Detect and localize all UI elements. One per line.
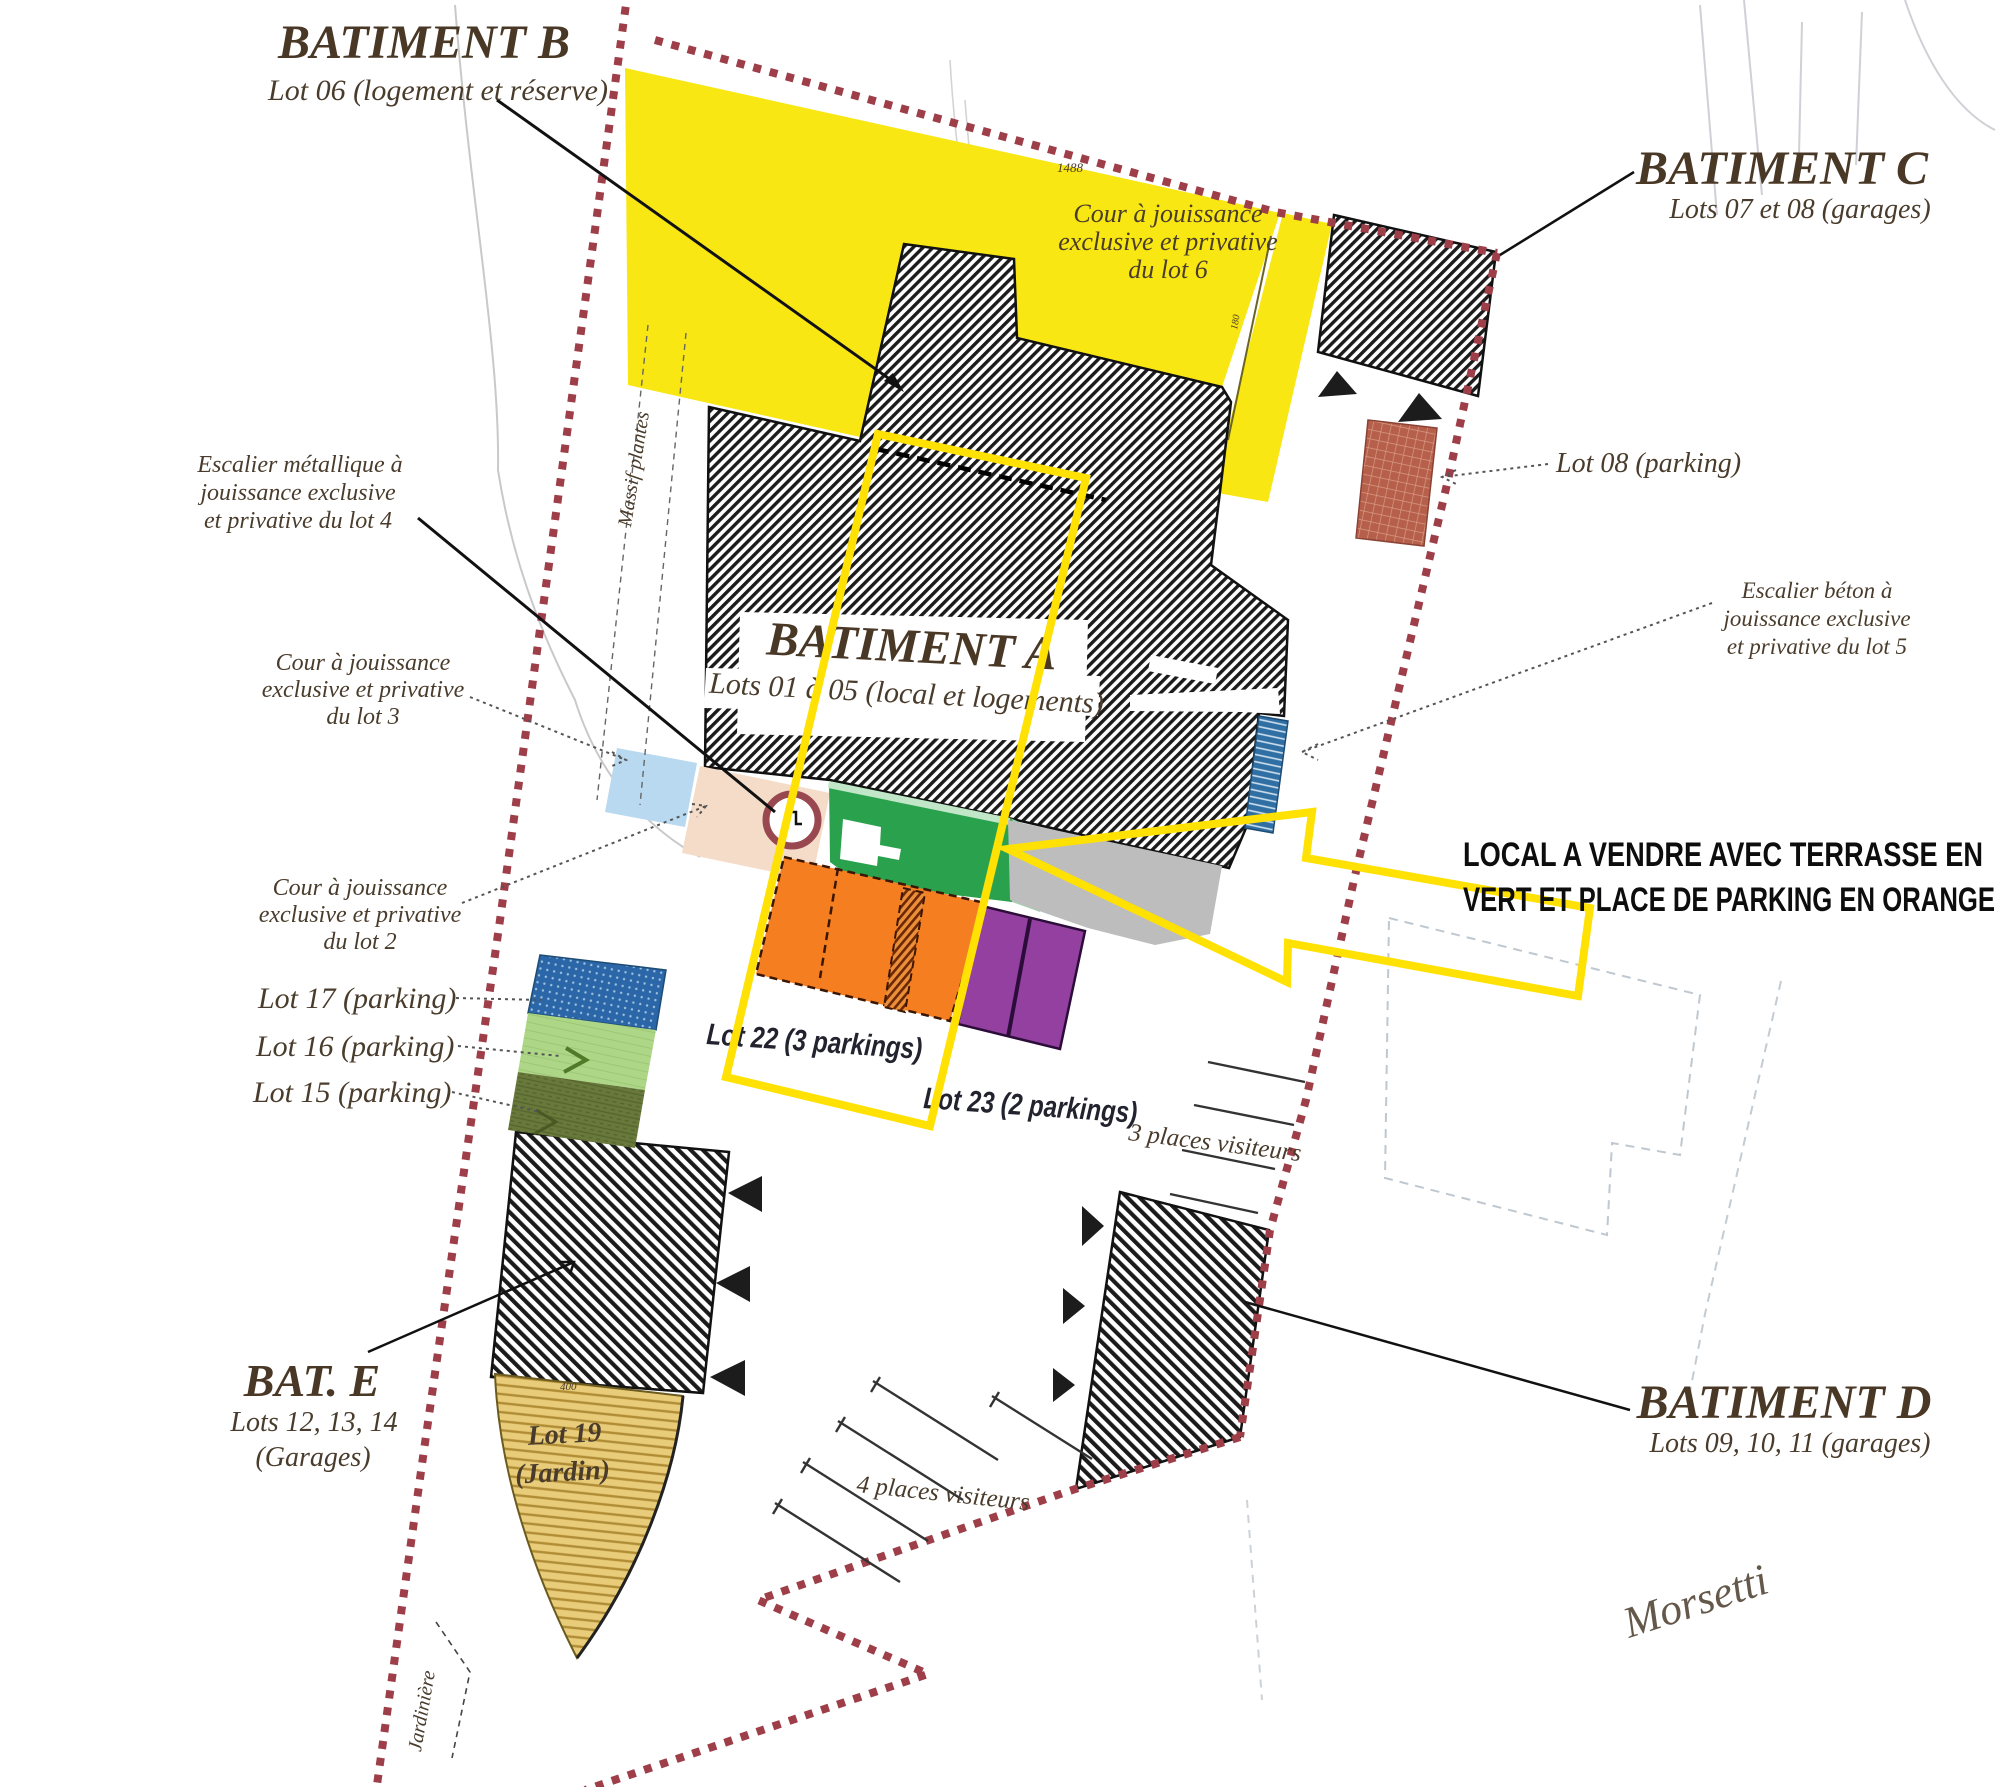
svg-text:Cour à jouissance: Cour à jouissance [1073, 199, 1262, 228]
svg-text:BATIMENT D: BATIMENT D [1636, 1376, 1932, 1429]
svg-text:(Garages): (Garages) [255, 1442, 370, 1473]
svg-text:jouissance exclusive: jouissance exclusive [1720, 606, 1910, 631]
svg-text:exclusive et privative: exclusive et privative [262, 677, 465, 703]
svg-text:Lot 19: Lot 19 [526, 1417, 602, 1452]
svg-text:Lot 06 (logement et réserve): Lot 06 (logement et réserve) [267, 74, 608, 107]
svg-text:BAT. E: BAT. E [243, 1355, 380, 1406]
svg-text:Escalier métallique à: Escalier métallique à [196, 452, 402, 478]
svg-text:et privative du lot 4: et privative du lot 4 [204, 508, 392, 534]
svg-text:et privative du lot 5: et privative du lot 5 [1727, 634, 1907, 659]
svg-text:(Jardin): (Jardin) [514, 1455, 610, 1491]
svg-text:du lot 2: du lot 2 [323, 929, 396, 955]
svg-text:du lot 6: du lot 6 [1128, 255, 1207, 284]
svg-text:Lots 07 et 08 (garages): Lots 07 et 08 (garages) [1668, 194, 1930, 225]
svg-text:400: 400 [560, 1381, 577, 1393]
svg-text:Lot 08 (parking): Lot 08 (parking) [1555, 448, 1741, 479]
svg-text:Lot 17 (parking): Lot 17 (parking) [257, 982, 456, 1015]
svg-text:LOCAL A VENDRE AVEC TERRASSE: LOCAL A VENDRE AVEC TERRASSE EN [1463, 836, 1983, 874]
svg-text:VERT ET PLACE DE PARKING EN OR: VERT ET PLACE DE PARKING EN ORANGE [1463, 881, 1995, 919]
svg-text:Lots 12, 13, 14: Lots 12, 13, 14 [229, 1407, 397, 1438]
svg-text:Lots 09, 10, 11 (garages): Lots 09, 10, 11 (garages) [1648, 1428, 1930, 1459]
svg-text:Cour à jouissance: Cour à jouissance [273, 875, 448, 901]
svg-text:Cour à jouissance: Cour à jouissance [276, 650, 451, 676]
svg-text:Escalier béton à: Escalier béton à [1741, 578, 1893, 603]
svg-text:exclusive et privative: exclusive et privative [259, 902, 462, 928]
svg-text:exclusive et privative: exclusive et privative [1058, 227, 1277, 256]
svg-text:Lot 15 (parking): Lot 15 (parking) [252, 1076, 451, 1109]
svg-text:BATIMENT C: BATIMENT C [1635, 142, 1929, 195]
svg-text:jouissance exclusive: jouissance exclusive [197, 480, 396, 506]
svg-text:1488: 1488 [1057, 160, 1084, 175]
svg-text:du lot 3: du lot 3 [326, 704, 399, 730]
svg-text:Lot 16 (parking): Lot 16 (parking) [255, 1030, 454, 1063]
svg-text:BATIMENT B: BATIMENT B [277, 16, 570, 69]
